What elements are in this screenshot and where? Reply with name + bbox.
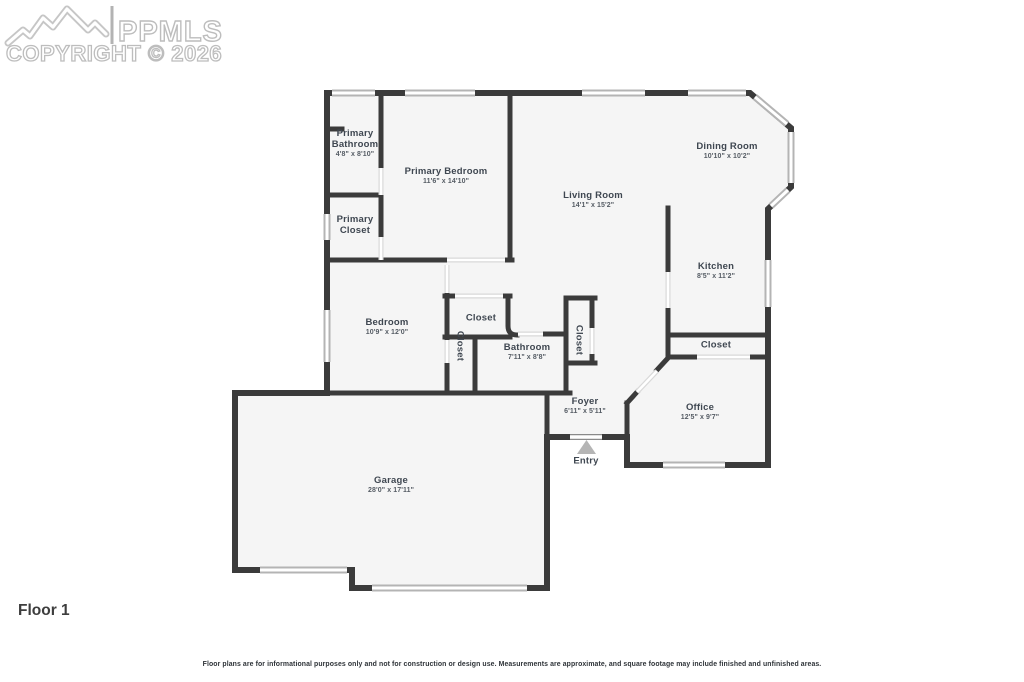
floor-title: Floor 1 bbox=[18, 602, 70, 620]
floor-area bbox=[235, 93, 791, 588]
floor-plan-svg bbox=[0, 0, 1024, 682]
entry-arrow-icon bbox=[577, 440, 596, 454]
floorplan-page: PPMLS COPYRIGHT © 2026 Primary Bathroom … bbox=[0, 0, 1024, 682]
disclaimer-text: Floor plans are for informational purpos… bbox=[0, 661, 1024, 668]
